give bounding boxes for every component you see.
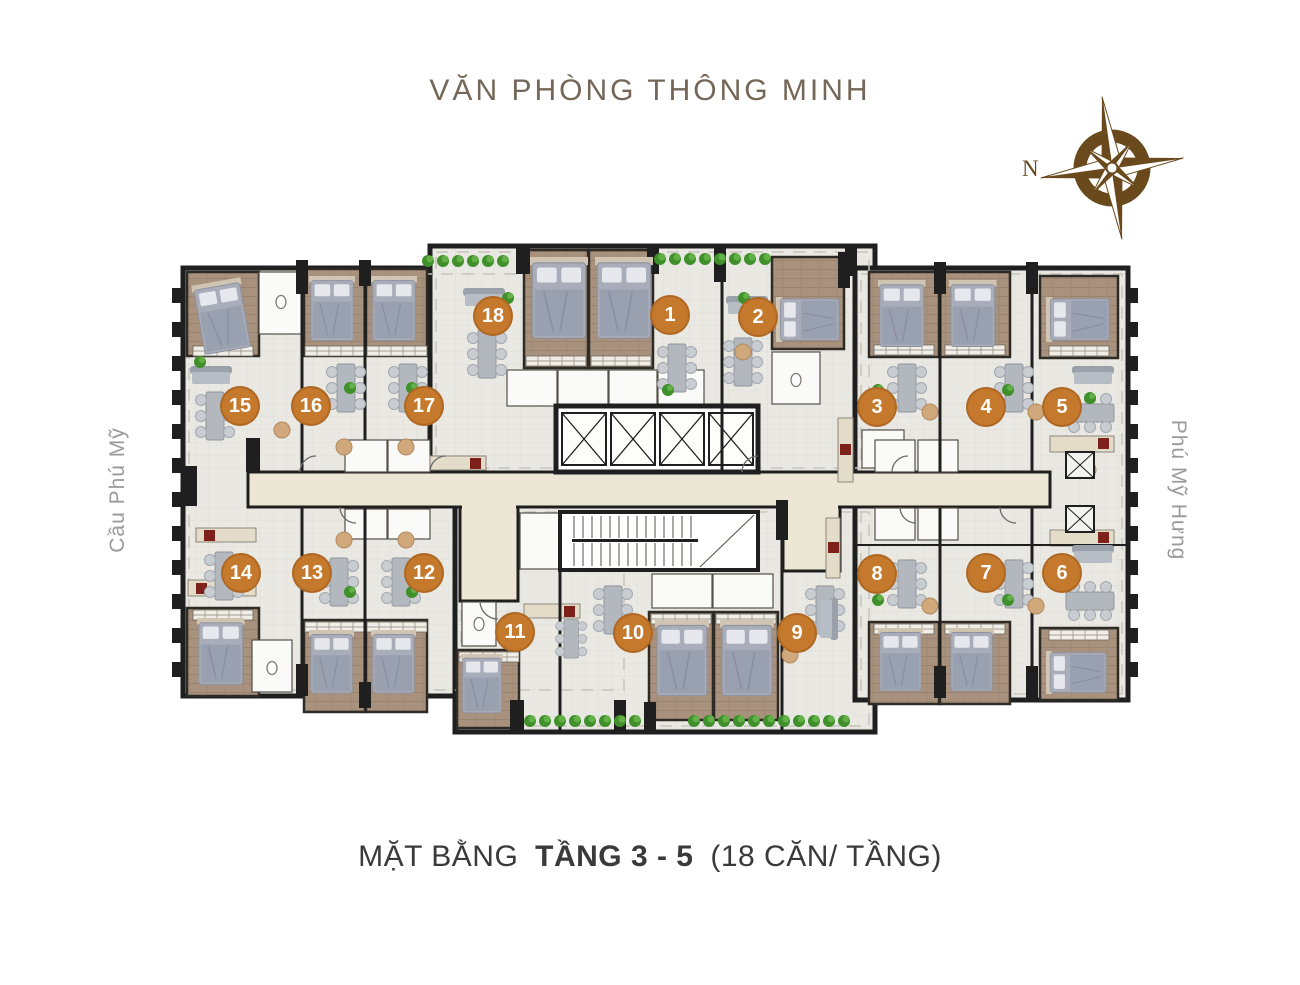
plant-icon: [604, 716, 611, 723]
plant-icon: [734, 254, 741, 261]
floor-plan: [0, 0, 1300, 985]
balcony-tooth: [1128, 288, 1138, 303]
balcony-tooth: [1128, 560, 1138, 575]
plant-icon: [813, 716, 820, 723]
balcony-tooth: [172, 390, 182, 405]
plant-icon: [689, 254, 696, 261]
plant-icon: [411, 587, 417, 593]
floor-plan-page: VĂN PHÒNG THÔNG MINH Cầu Phú Mỹ Phú Mỹ H…: [0, 0, 1300, 985]
balcony-tooth: [1128, 458, 1138, 473]
plant-icon: [738, 716, 745, 723]
balcony-tooth: [1128, 390, 1138, 405]
plant-icon: [502, 256, 509, 263]
plant-icon: [634, 716, 641, 723]
plant-icon: [1007, 385, 1013, 391]
plant-icon: [708, 716, 715, 723]
plant-icon: [507, 293, 513, 299]
plant-icon: [544, 716, 551, 723]
plant-icon: [768, 716, 775, 723]
plant-icon: [472, 256, 479, 263]
plant-icon: [693, 716, 700, 723]
plant-icon: [1007, 595, 1013, 601]
balcony-tooth: [172, 322, 182, 337]
plant-icon: [349, 587, 355, 593]
balcony-tooth: [172, 526, 182, 541]
plant-icon: [457, 256, 464, 263]
plant-icon: [843, 716, 850, 723]
balcony-tooth: [172, 424, 182, 439]
staircase: [560, 512, 758, 570]
balcony-tooth: [1128, 424, 1138, 439]
balcony-tooth: [172, 594, 182, 609]
plant-icon: [411, 383, 417, 389]
plant-icon: [667, 385, 673, 391]
balcony-tooth: [1128, 492, 1138, 507]
plant-icon: [798, 716, 805, 723]
plant-icon: [719, 254, 726, 261]
plant-icon: [519, 635, 525, 641]
plant-icon: [764, 254, 771, 261]
plant-icon: [427, 256, 434, 263]
plant-icon: [828, 716, 835, 723]
balcony-tooth: [172, 356, 182, 371]
plant-icon: [749, 254, 756, 261]
caption-prefix: MẶT BẰNG: [358, 840, 518, 874]
balcony-tooth: [172, 662, 182, 677]
plant-icon: [877, 385, 883, 391]
balcony-tooth: [172, 458, 182, 473]
balcony-tooth: [1128, 628, 1138, 643]
plant-icon: [559, 716, 566, 723]
plant-icon: [1089, 393, 1095, 399]
balcony-tooth: [172, 560, 182, 575]
plant-icon: [199, 357, 205, 363]
plant-icon: [704, 254, 711, 261]
plant-icon: [743, 293, 749, 299]
plant-icon: [659, 254, 666, 261]
balcony-tooth: [172, 288, 182, 303]
plan-caption: MẶT BẰNG TẦNG 3 - 5 (18 CĂN/ TẦNG): [0, 840, 1300, 874]
elevator-core: [556, 406, 758, 472]
plant-icon: [442, 256, 449, 263]
plant-icon: [783, 716, 790, 723]
balcony-tooth: [1128, 356, 1138, 371]
caption-floors: TẦNG 3 - 5: [535, 840, 693, 874]
plant-icon: [753, 716, 760, 723]
balcony-tooth: [1128, 594, 1138, 609]
plant-icon: [723, 716, 730, 723]
balcony-tooth: [1128, 526, 1138, 541]
plant-icon: [589, 716, 596, 723]
plant-icon: [529, 716, 536, 723]
plant-icon: [877, 595, 883, 601]
balcony-tooth: [172, 628, 182, 643]
balcony-tooth: [1128, 322, 1138, 337]
plant-icon: [619, 716, 626, 723]
plant-icon: [487, 256, 494, 263]
balcony-tooth: [1128, 662, 1138, 677]
plant-icon: [574, 716, 581, 723]
plant-icon: [349, 383, 355, 389]
plant-icon: [674, 254, 681, 261]
balcony-tooth: [172, 492, 182, 507]
caption-suffix: (18 CĂN/ TẦNG): [710, 840, 942, 874]
